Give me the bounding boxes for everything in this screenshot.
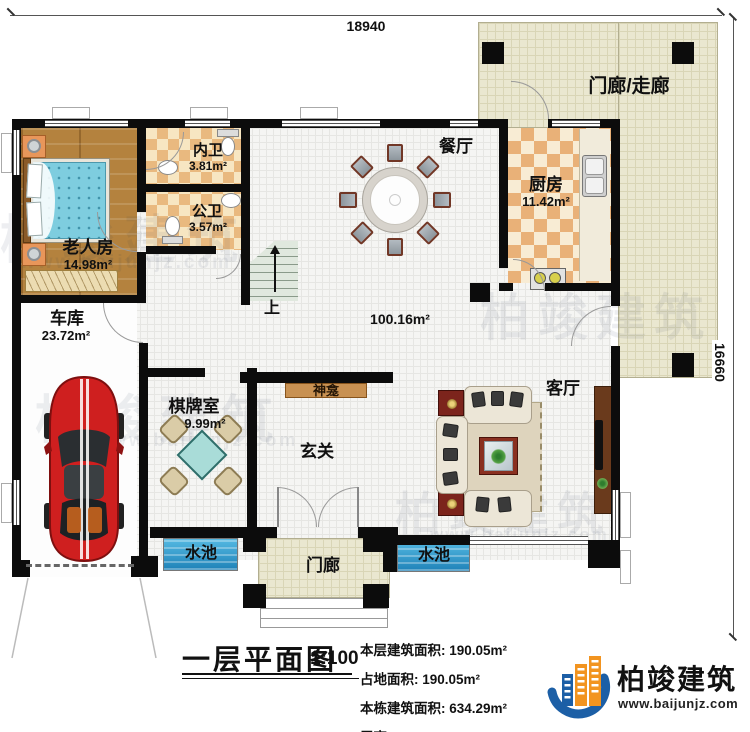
window bbox=[13, 480, 20, 525]
window bbox=[552, 120, 600, 127]
brand-name: 柏竣建筑 bbox=[617, 658, 737, 698]
sofa-pillow bbox=[471, 391, 486, 408]
column bbox=[383, 527, 397, 572]
column bbox=[672, 353, 694, 377]
label-elder-room: 老人房 bbox=[63, 239, 114, 258]
toilet-bowl bbox=[165, 216, 180, 236]
wall bbox=[241, 128, 250, 305]
label-pool-left: 水池 bbox=[185, 545, 217, 563]
dining-table-center bbox=[389, 194, 401, 206]
column bbox=[243, 584, 266, 608]
brand-logo-icon bbox=[540, 648, 616, 720]
end-table bbox=[438, 390, 464, 416]
label-chess-room-area: 9.99m² bbox=[184, 417, 225, 431]
dining-chair bbox=[339, 192, 357, 208]
window bbox=[282, 120, 380, 127]
window-sill bbox=[1, 483, 12, 523]
label-kitchen-area: 11.42m² bbox=[522, 195, 570, 209]
window bbox=[470, 536, 588, 545]
column bbox=[363, 584, 389, 608]
sofa-pillow bbox=[491, 391, 504, 406]
window-sill bbox=[1, 133, 12, 173]
bed-pillow bbox=[26, 164, 43, 199]
tv-plant bbox=[597, 478, 608, 489]
wall bbox=[588, 540, 620, 568]
car bbox=[42, 375, 126, 563]
wall bbox=[131, 556, 158, 577]
label-shrine: 神龛 bbox=[313, 384, 339, 398]
wall bbox=[146, 184, 241, 192]
dining-chair bbox=[433, 192, 451, 208]
sofa-pillow bbox=[509, 391, 524, 408]
label-hall-area: 100.16m² bbox=[370, 312, 430, 327]
coffee-table-plant bbox=[491, 449, 506, 464]
label-garage: 车库 bbox=[50, 310, 84, 329]
kitchen-counter bbox=[579, 129, 610, 281]
title-underline bbox=[182, 673, 352, 675]
window bbox=[45, 120, 128, 127]
nightstand-lamp bbox=[27, 247, 41, 261]
window-sill bbox=[52, 107, 90, 119]
dimension-line-right bbox=[733, 18, 734, 638]
window bbox=[450, 120, 478, 127]
tv bbox=[595, 420, 603, 470]
window-sill bbox=[620, 492, 631, 538]
column bbox=[243, 527, 266, 552]
garage-door-dashed bbox=[26, 564, 134, 567]
stats-block: 本层建筑面积: 190.05m² 占地面积: 190.05m² 本栋建筑面积: … bbox=[360, 639, 507, 732]
dimension-line-top bbox=[10, 15, 722, 16]
kitchen-sink-basin bbox=[585, 158, 604, 175]
kitchen-sink-basin bbox=[585, 177, 604, 194]
toilet-bowl bbox=[221, 137, 235, 156]
window-sill bbox=[620, 550, 631, 584]
dimension-top-value: 18940 bbox=[343, 19, 390, 34]
bed-pillow bbox=[26, 202, 43, 237]
label-inner-bath: 内卫 bbox=[193, 143, 223, 160]
wall bbox=[240, 372, 393, 383]
dining-chair bbox=[387, 144, 403, 162]
label-foyer: 玄关 bbox=[300, 443, 334, 462]
label-elder-room-area: 14.98m² bbox=[64, 258, 112, 272]
window bbox=[13, 130, 20, 175]
sink bbox=[221, 193, 241, 208]
wall bbox=[499, 128, 508, 268]
door-leaf bbox=[357, 487, 359, 527]
window-sill bbox=[300, 107, 338, 119]
nightstand-lamp bbox=[27, 139, 41, 153]
wall bbox=[12, 295, 146, 303]
wall bbox=[12, 560, 30, 577]
wall bbox=[397, 535, 470, 545]
label-kitchen: 厨房 bbox=[529, 176, 563, 195]
label-dining: 餐厅 bbox=[439, 138, 473, 157]
stairs-arrow bbox=[274, 252, 276, 292]
column bbox=[672, 42, 694, 64]
stat-floor-area: 本层建筑面积: 190.05m² bbox=[360, 639, 507, 659]
dining-chair bbox=[387, 238, 403, 256]
label-porch-corridor: 门廊/走廊 bbox=[588, 77, 669, 98]
column bbox=[482, 42, 504, 64]
sofa-pillow bbox=[475, 496, 489, 512]
brand-website: www.baijunjz.com bbox=[618, 696, 738, 711]
label-garage-area: 23.72m² bbox=[42, 329, 90, 343]
wall bbox=[611, 119, 620, 306]
sofa-pillow bbox=[442, 471, 459, 486]
door-leaf bbox=[277, 487, 279, 527]
toilet bbox=[162, 236, 183, 244]
label-pool-right: 水池 bbox=[418, 547, 450, 565]
label-public-bath: 公卫 bbox=[192, 204, 222, 221]
wall bbox=[247, 368, 257, 538]
wardrobe bbox=[25, 270, 118, 292]
stairs-arrow-head bbox=[270, 245, 280, 254]
wall bbox=[545, 283, 612, 291]
label-stairs-up: 上 bbox=[264, 300, 280, 318]
wall bbox=[137, 128, 146, 212]
wall bbox=[150, 527, 247, 538]
wall bbox=[139, 368, 205, 377]
sofa-pillow bbox=[497, 496, 511, 512]
dimension-right-value: 16660 bbox=[712, 340, 728, 385]
toilet bbox=[217, 129, 239, 137]
sofa-pillow bbox=[443, 448, 458, 461]
stat-total-area: 本栋建筑面积: 634.29m² bbox=[360, 697, 507, 717]
window bbox=[185, 120, 230, 127]
wall bbox=[499, 283, 513, 291]
sofa-pillow bbox=[442, 423, 459, 438]
stat-footprint-area: 占地面积: 190.05m² bbox=[360, 668, 507, 688]
label-porch: 门廊 bbox=[306, 557, 340, 576]
label-living: 客厅 bbox=[546, 380, 580, 399]
plan-scale: 1:100 bbox=[310, 648, 359, 670]
column bbox=[470, 283, 490, 302]
window-sill bbox=[190, 107, 228, 119]
title-underline bbox=[182, 678, 359, 679]
wall bbox=[146, 246, 216, 254]
driveway bbox=[0, 570, 170, 662]
label-chess-room: 棋牌室 bbox=[169, 398, 220, 417]
floor-plan-canvas: 柏竣建筑 www.baijunjz.com 柏竣建筑 柏竣建筑 www.baij… bbox=[0, 0, 750, 732]
window bbox=[612, 490, 619, 540]
label-inner-bath-area: 3.81m² bbox=[189, 160, 227, 173]
label-public-bath-area: 3.57m² bbox=[189, 221, 227, 234]
stat-floor-height: 层高: 4.2m bbox=[360, 726, 507, 732]
